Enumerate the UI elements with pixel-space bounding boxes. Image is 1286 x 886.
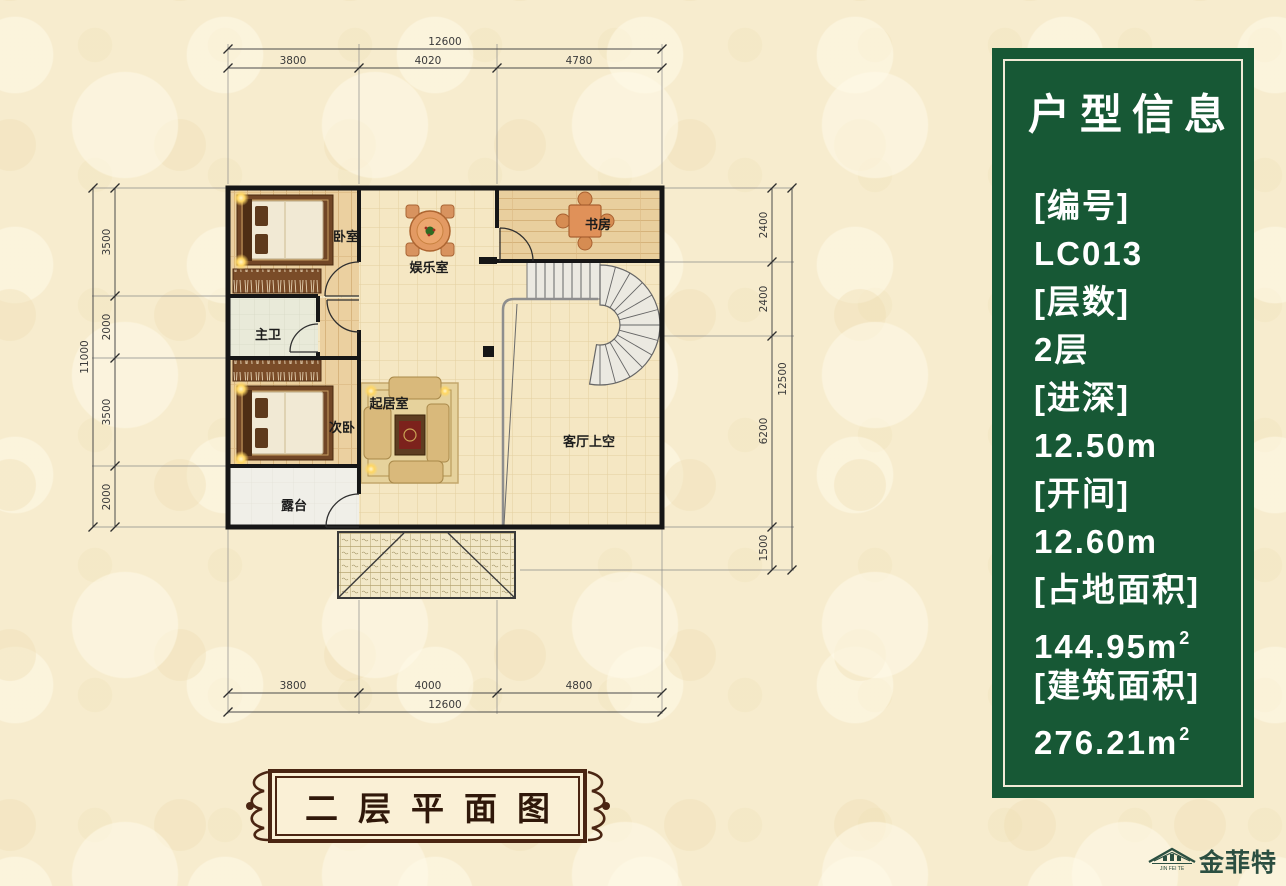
corridor-floor [320, 298, 359, 358]
logo-name: 金菲特 [1199, 843, 1277, 879]
dim-top-overall: 12600 [428, 36, 461, 48]
bedroom1-furniture [233, 190, 333, 293]
column [483, 346, 494, 357]
info-panel-line: [建筑面积] [1034, 662, 1236, 710]
dim-left-overall: 11000 [79, 340, 91, 373]
stool [556, 214, 570, 228]
info-panel-title: 户型信息 [1028, 94, 1236, 136]
room-label-bedroom1: 卧室 [333, 229, 359, 244]
wardrobe [233, 360, 321, 381]
dim-right-seg4: 1500 [758, 535, 770, 562]
sofa [364, 407, 391, 459]
lamp [439, 385, 451, 397]
pillow [255, 428, 268, 448]
lamp [233, 254, 249, 270]
room-label-study: 书房 [585, 217, 611, 232]
info-panel-line: 2层 [1034, 326, 1236, 374]
wall-stub [479, 257, 497, 264]
dim-left-seg2: 2000 [101, 314, 113, 341]
room-label-bedroom2: 次卧 [329, 420, 355, 435]
dim-right-seg1: 2400 [758, 212, 770, 239]
info-panel: 户型信息 [编号]LC013[层数]2层[进深]12.50m[开间]12.60m… [992, 48, 1254, 798]
terrace-floor [230, 468, 359, 525]
pillow [255, 398, 268, 418]
caption-title: 二层平面图 [285, 782, 570, 830]
wardrobe [233, 269, 321, 293]
dim-bottom-seg2: 4000 [415, 680, 442, 692]
brand-logo: JIN FEI TE 金菲特 [1148, 843, 1277, 879]
squared-superscript: 2 [1179, 628, 1191, 648]
headboard [243, 390, 252, 456]
dim-top-seg3: 4780 [566, 55, 593, 67]
lamp [233, 381, 249, 397]
dim-bottom-seg1: 3800 [280, 680, 307, 692]
porch-roof [338, 532, 515, 598]
room-label-bath: 主卫 [255, 327, 281, 342]
sofa [427, 404, 449, 462]
lamp [233, 190, 249, 206]
dim-left-seg4: 2000 [101, 484, 113, 511]
recreation-table [406, 205, 454, 256]
pillow [255, 206, 268, 226]
dim-left-seg3: 3500 [101, 399, 113, 426]
room-label-terrace: 露台 [281, 498, 307, 513]
info-panel-line: 144.95m2 [1034, 614, 1236, 662]
info-panel-line: [开间] [1034, 470, 1236, 518]
dim-top-seg1: 3800 [280, 55, 307, 67]
caption-plaque: 二层平面图 [240, 766, 616, 846]
bedroom2-furniture [233, 360, 333, 467]
room-label-sitting: 起居室 [368, 396, 408, 411]
house-roof-icon: JIN FEI TE [1148, 846, 1196, 876]
caption-inner-frame: 二层平面图 [275, 776, 580, 836]
info-panel-line: [进深] [1034, 374, 1236, 422]
info-panel-content: 户型信息 [编号]LC013[层数]2层[进深]12.50m[开间]12.60m… [992, 48, 1254, 798]
flourish-ornament-left [240, 768, 270, 844]
lamp [364, 462, 378, 476]
dim-bottom-seg3: 4800 [566, 680, 593, 692]
room-label-recreation: 娱乐室 [409, 260, 448, 275]
pillow [255, 234, 268, 254]
info-panel-line: 12.50m [1034, 422, 1236, 470]
info-panel-line: [层数] [1034, 278, 1236, 326]
dim-bottom-overall: 12600 [428, 699, 461, 711]
sofa [389, 461, 443, 483]
dim-right-seg3: 6200 [758, 418, 770, 445]
caption-frame: 二层平面图 [268, 769, 587, 843]
dim-top-seg2: 4020 [415, 55, 442, 67]
dim-right-seg2: 2400 [758, 286, 770, 313]
flourish-ornament-right [586, 768, 616, 844]
info-panel-line: LC013 [1034, 230, 1236, 278]
stool [578, 192, 592, 206]
headboard [243, 199, 252, 261]
info-panel-line: 276.21m2 [1034, 710, 1236, 758]
dim-left-seg1: 3500 [101, 229, 113, 256]
stool [578, 236, 592, 250]
squared-superscript: 2 [1179, 724, 1191, 744]
sitting-room-furniture [361, 377, 458, 483]
info-panel-lines: [编号]LC013[层数]2层[进深]12.50m[开间]12.60m[占地面积… [1034, 182, 1236, 758]
info-panel-line: 12.60m [1034, 518, 1236, 566]
dim-right-overall: 12500 [777, 362, 789, 395]
info-panel-line: [占地面积] [1034, 566, 1236, 614]
room-label-living-void: 客厅上空 [563, 434, 615, 449]
info-panel-line: [编号] [1034, 182, 1236, 230]
logo-subtext: JIN FEI TE [1160, 866, 1185, 872]
flyer-page: { "plan": { "rooms": { "bedroom1": "卧室",… [0, 0, 1286, 886]
